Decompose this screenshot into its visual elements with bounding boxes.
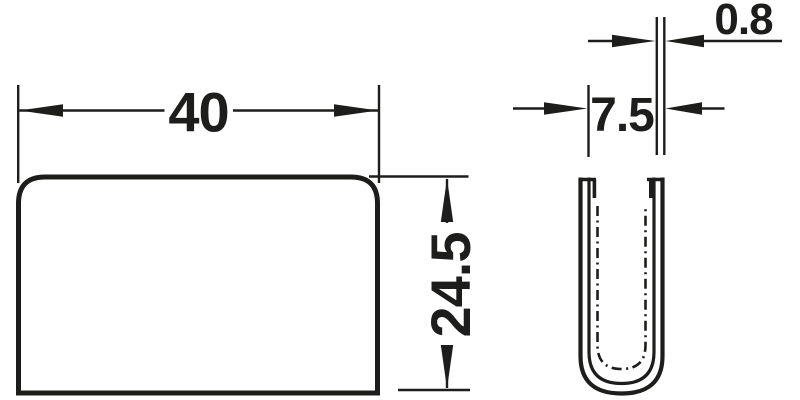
- technical-drawing: 40 24.5: [0, 0, 800, 400]
- profile-hidden-centerline: [598, 206, 646, 369]
- profile-view: 7.5 0.8: [513, 0, 782, 394]
- dim-wall-thickness-label: 0.8: [714, 0, 773, 44]
- profile-outer-outline: [581, 178, 663, 394]
- dim-profile-width: 7.5: [513, 85, 725, 157]
- dim-width-label: 40: [168, 81, 228, 144]
- dim-profile-width-arrow-left: [544, 102, 587, 114]
- dim-width-arrow-right: [334, 104, 378, 116]
- drawing-canvas: 40 24.5: [0, 0, 800, 400]
- dim-wall-arrow-right: [666, 35, 704, 47]
- dim-profile-width-arrow-right: [665, 102, 702, 114]
- front-view-outline: [19, 177, 378, 393]
- front-view: 40 24.5: [18, 81, 482, 394]
- dim-height: 24.5: [369, 177, 482, 391]
- dim-profile-width-label: 7.5: [590, 89, 654, 142]
- dim-height-arrow-bottom: [441, 345, 453, 389]
- dim-width-arrow-left: [19, 104, 63, 116]
- dim-height-arrow-top: [441, 179, 453, 223]
- dim-wall-arrow-left: [612, 35, 656, 47]
- dim-width: 40: [18, 81, 379, 184]
- dim-height-label: 24.5: [419, 233, 482, 338]
